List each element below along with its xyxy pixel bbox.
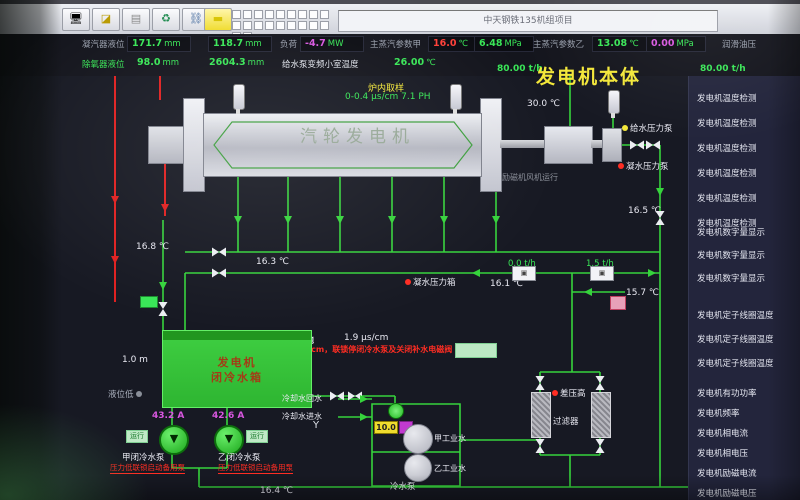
yellow-status-dot xyxy=(622,125,628,131)
deaerator-level-label: 除氧器液位 xyxy=(82,58,125,70)
tank-level: 1.0 m xyxy=(122,355,148,365)
industrial-water-a-pump[interactable] xyxy=(403,424,433,454)
toolbar: 🖥 ◪ ▤ ♻ ⛓ ▬ 中天钢铁135机组项目 xyxy=(0,4,800,35)
red-alarm-dot xyxy=(405,279,411,285)
flow-right: 80.00 t/h xyxy=(700,64,746,74)
exciter-temp: 30.0 ℃ xyxy=(527,99,560,109)
main-steam-b-press: 0.00MPa xyxy=(646,36,706,52)
feedwater-pressure-pump-label: 给水压力泵 xyxy=(622,122,673,134)
shaft xyxy=(500,140,544,148)
pump-a-current: 43.2 A xyxy=(152,411,184,421)
sidebar-item[interactable]: 发电机励磁电压 xyxy=(697,487,800,499)
temp-16-3: 16.3 ℃ xyxy=(256,257,289,267)
sidebar-item[interactable]: 发电机定子线圈温度 xyxy=(697,333,800,345)
industrial-water-a-label: 甲工业水 xyxy=(434,433,466,444)
toolbar-toggle-grid[interactable] xyxy=(232,10,336,30)
status-row-1: 凝汽器液位 171.7mm 118.7mm 负荷 -4.7MW 主蒸汽参数甲 1… xyxy=(0,34,800,55)
exciter-box xyxy=(544,126,593,164)
sidebar-item[interactable]: 发电机数字量显示 xyxy=(697,226,800,238)
feedpump-room-temp-label: 给水泵变频小室温度 xyxy=(282,58,359,70)
condenser-level-label: 凝汽器液位 xyxy=(82,38,125,50)
pump-b-current: 42.6 A xyxy=(212,411,244,421)
sidebar-group-electrical: 发电机有功功率发电机频率发电机相电流发电机相电压发电机励磁电流发电机励磁电压 xyxy=(697,387,800,500)
back-icon[interactable]: ◪ xyxy=(92,8,120,31)
turbine-label: 汽轮发电机 xyxy=(300,122,415,147)
sidebar-item[interactable]: 发电机有功功率 xyxy=(697,387,800,399)
main-steam-b-temp: 13.08℃ xyxy=(592,36,648,52)
flow-meter[interactable]: ▣ xyxy=(512,266,536,281)
sidebar-nav: 发电机温度检测发电机温度检测发电机温度检测发电机温度检测发电机温度检测发电机温度… xyxy=(688,76,800,500)
condensate-pressure-pump-label: 凝水压力泵 xyxy=(618,160,669,172)
temp-16-5: 16.5 ℃ xyxy=(628,206,661,216)
sidebar-item[interactable]: 发电机温度检测 xyxy=(697,192,800,204)
turbine-left-cap xyxy=(183,98,205,192)
industrial-water-b-pump[interactable] xyxy=(404,454,432,482)
alarm-ack-button[interactable] xyxy=(455,343,497,358)
sidebar-item[interactable]: 发电机数字量显示 xyxy=(697,272,800,284)
window-title[interactable]: 中天钢铁135机组项目 xyxy=(338,10,718,32)
pump-b-interlock-alarm: 压力低联锁启动备用泵 xyxy=(218,462,293,474)
gray-status-dot xyxy=(136,391,142,397)
feedpump-room-temp: 26.00℃ xyxy=(390,56,448,70)
flow-meter[interactable]: ▣ xyxy=(590,266,614,281)
sidebar-group-digital: 发电机数字量显示发电机数字量显示发电机数字量显示 xyxy=(697,226,800,295)
filter-b[interactable] xyxy=(591,392,611,438)
lube-oil-label: 润滑油压 xyxy=(722,38,756,50)
condenser-level-1: 171.7mm xyxy=(127,36,191,52)
sidebar-item[interactable]: 发电机温度检测 xyxy=(697,142,800,154)
condenser-level-2: 118.7mm xyxy=(208,36,272,52)
pilot-exciter-box xyxy=(602,128,622,162)
sensor-probe xyxy=(233,84,245,110)
sidebar-item[interactable]: 发电机温度检测 xyxy=(697,92,800,104)
red-alarm-dot xyxy=(552,390,558,396)
sensor-probe xyxy=(450,84,462,110)
sidebar-item[interactable]: 发电机温度检测 xyxy=(697,117,800,129)
pump-b-status-chip: 运行 xyxy=(246,430,268,443)
sidebar-item[interactable]: 发电机频率 xyxy=(697,407,800,419)
main-steam-a-temp: 16.0℃ xyxy=(428,36,478,52)
red-alarm-dot xyxy=(618,163,624,169)
monitor-icon[interactable]: 🖥 xyxy=(62,8,90,31)
status-row-2: 除氧器液位 98.0mm 2604.3mm 给水泵变频小室温度 26.00℃ xyxy=(0,54,800,76)
main-steam-a-label: 主蒸汽参数甲 xyxy=(370,38,421,50)
sensor-probe xyxy=(608,90,620,114)
pump-a-status-chip: 运行 xyxy=(126,430,148,443)
tank-top-band xyxy=(163,331,311,340)
condensate-tank-label: 凝水压力箱 xyxy=(405,276,456,288)
furnace-sample-value: 0-0.4 μs/cm 7.1 PH xyxy=(345,92,431,102)
y-strainer-symbol: Y xyxy=(313,420,319,431)
sidebar-item[interactable]: 发电机相电流 xyxy=(697,427,800,439)
sidebar-item[interactable]: 发电机定子线圈温度 xyxy=(697,357,800,369)
sidebar-item[interactable]: 发电机数字量显示 xyxy=(697,249,800,261)
picture-icon[interactable]: ▤ xyxy=(122,8,150,31)
turbine-right-cap xyxy=(480,98,502,192)
sidebar-group-stator: 发电机定子线圈温度发电机定子线圈温度发电机定子线圈温度 xyxy=(697,309,800,381)
page-title: 发电机本体 xyxy=(536,62,641,89)
level-low-label: 液位低 xyxy=(108,388,144,400)
green-indicator xyxy=(140,296,158,308)
cold-pump-label: 冷水泵 xyxy=(390,480,416,492)
load-label: 负荷 xyxy=(280,38,297,50)
sidebar-group-temps: 发电机温度检测发电机温度检测发电机温度检测发电机温度检测发电机温度检测发电机温度… xyxy=(697,92,800,242)
exciter-fan-status: 励磁机风机运行 xyxy=(502,172,558,183)
valve-value-box: 10.0 xyxy=(374,421,398,434)
ground-value: 1.9 μs/cm xyxy=(344,333,388,343)
industrial-water-b-label: 乙工业水 xyxy=(434,463,466,474)
main-steam-b-label: 主蒸汽参数乙 xyxy=(533,38,584,50)
temp-16-4: 16.4 ℃ xyxy=(260,486,293,496)
shaft xyxy=(591,140,602,148)
filter-a[interactable] xyxy=(531,392,551,438)
main-steam-a-press: 6.48MPa xyxy=(474,36,534,52)
temp-15-7: 15.7 ℃ xyxy=(626,288,659,298)
sidebar-item[interactable]: 发电机定子线圈温度 xyxy=(697,309,800,321)
pump-a-interlock-alarm: 压力低联锁启动备用泵 xyxy=(110,462,185,474)
sidebar-item[interactable]: 发电机相电压 xyxy=(697,447,800,459)
filter-label: 过滤器 xyxy=(553,415,579,427)
deaerator-level-2: 2604.3mm xyxy=(205,56,273,70)
temp-16-8: 16.8 ℃ xyxy=(136,242,169,252)
load-value: -4.7MW xyxy=(300,36,364,52)
refresh-icon[interactable]: ♻ xyxy=(152,8,180,31)
sidebar-item[interactable]: 发电机励磁电流 xyxy=(697,467,800,479)
cooling-return-label: 冷却水回水 xyxy=(282,393,322,404)
sidebar-item[interactable]: 发电机温度检测 xyxy=(697,167,800,179)
dp-high-label: 差压高 xyxy=(552,387,586,399)
generator-mimic-diagram: 汽轮发电机 80.00 t/h 发电机本体 80.00 t/h 炉内取样 0-0… xyxy=(0,76,800,500)
scada-screen: 🖥 ◪ ▤ ♻ ⛓ ▬ 中天钢铁135机组项目 凝汽器液位 171.7mm 11… xyxy=(0,0,800,500)
extraction-box xyxy=(148,126,184,164)
makeup-valve[interactable] xyxy=(388,403,404,419)
pink-indicator xyxy=(610,296,626,310)
deaerator-level-1: 98.0mm xyxy=(133,56,191,70)
note-icon[interactable]: ▬ xyxy=(204,8,232,31)
